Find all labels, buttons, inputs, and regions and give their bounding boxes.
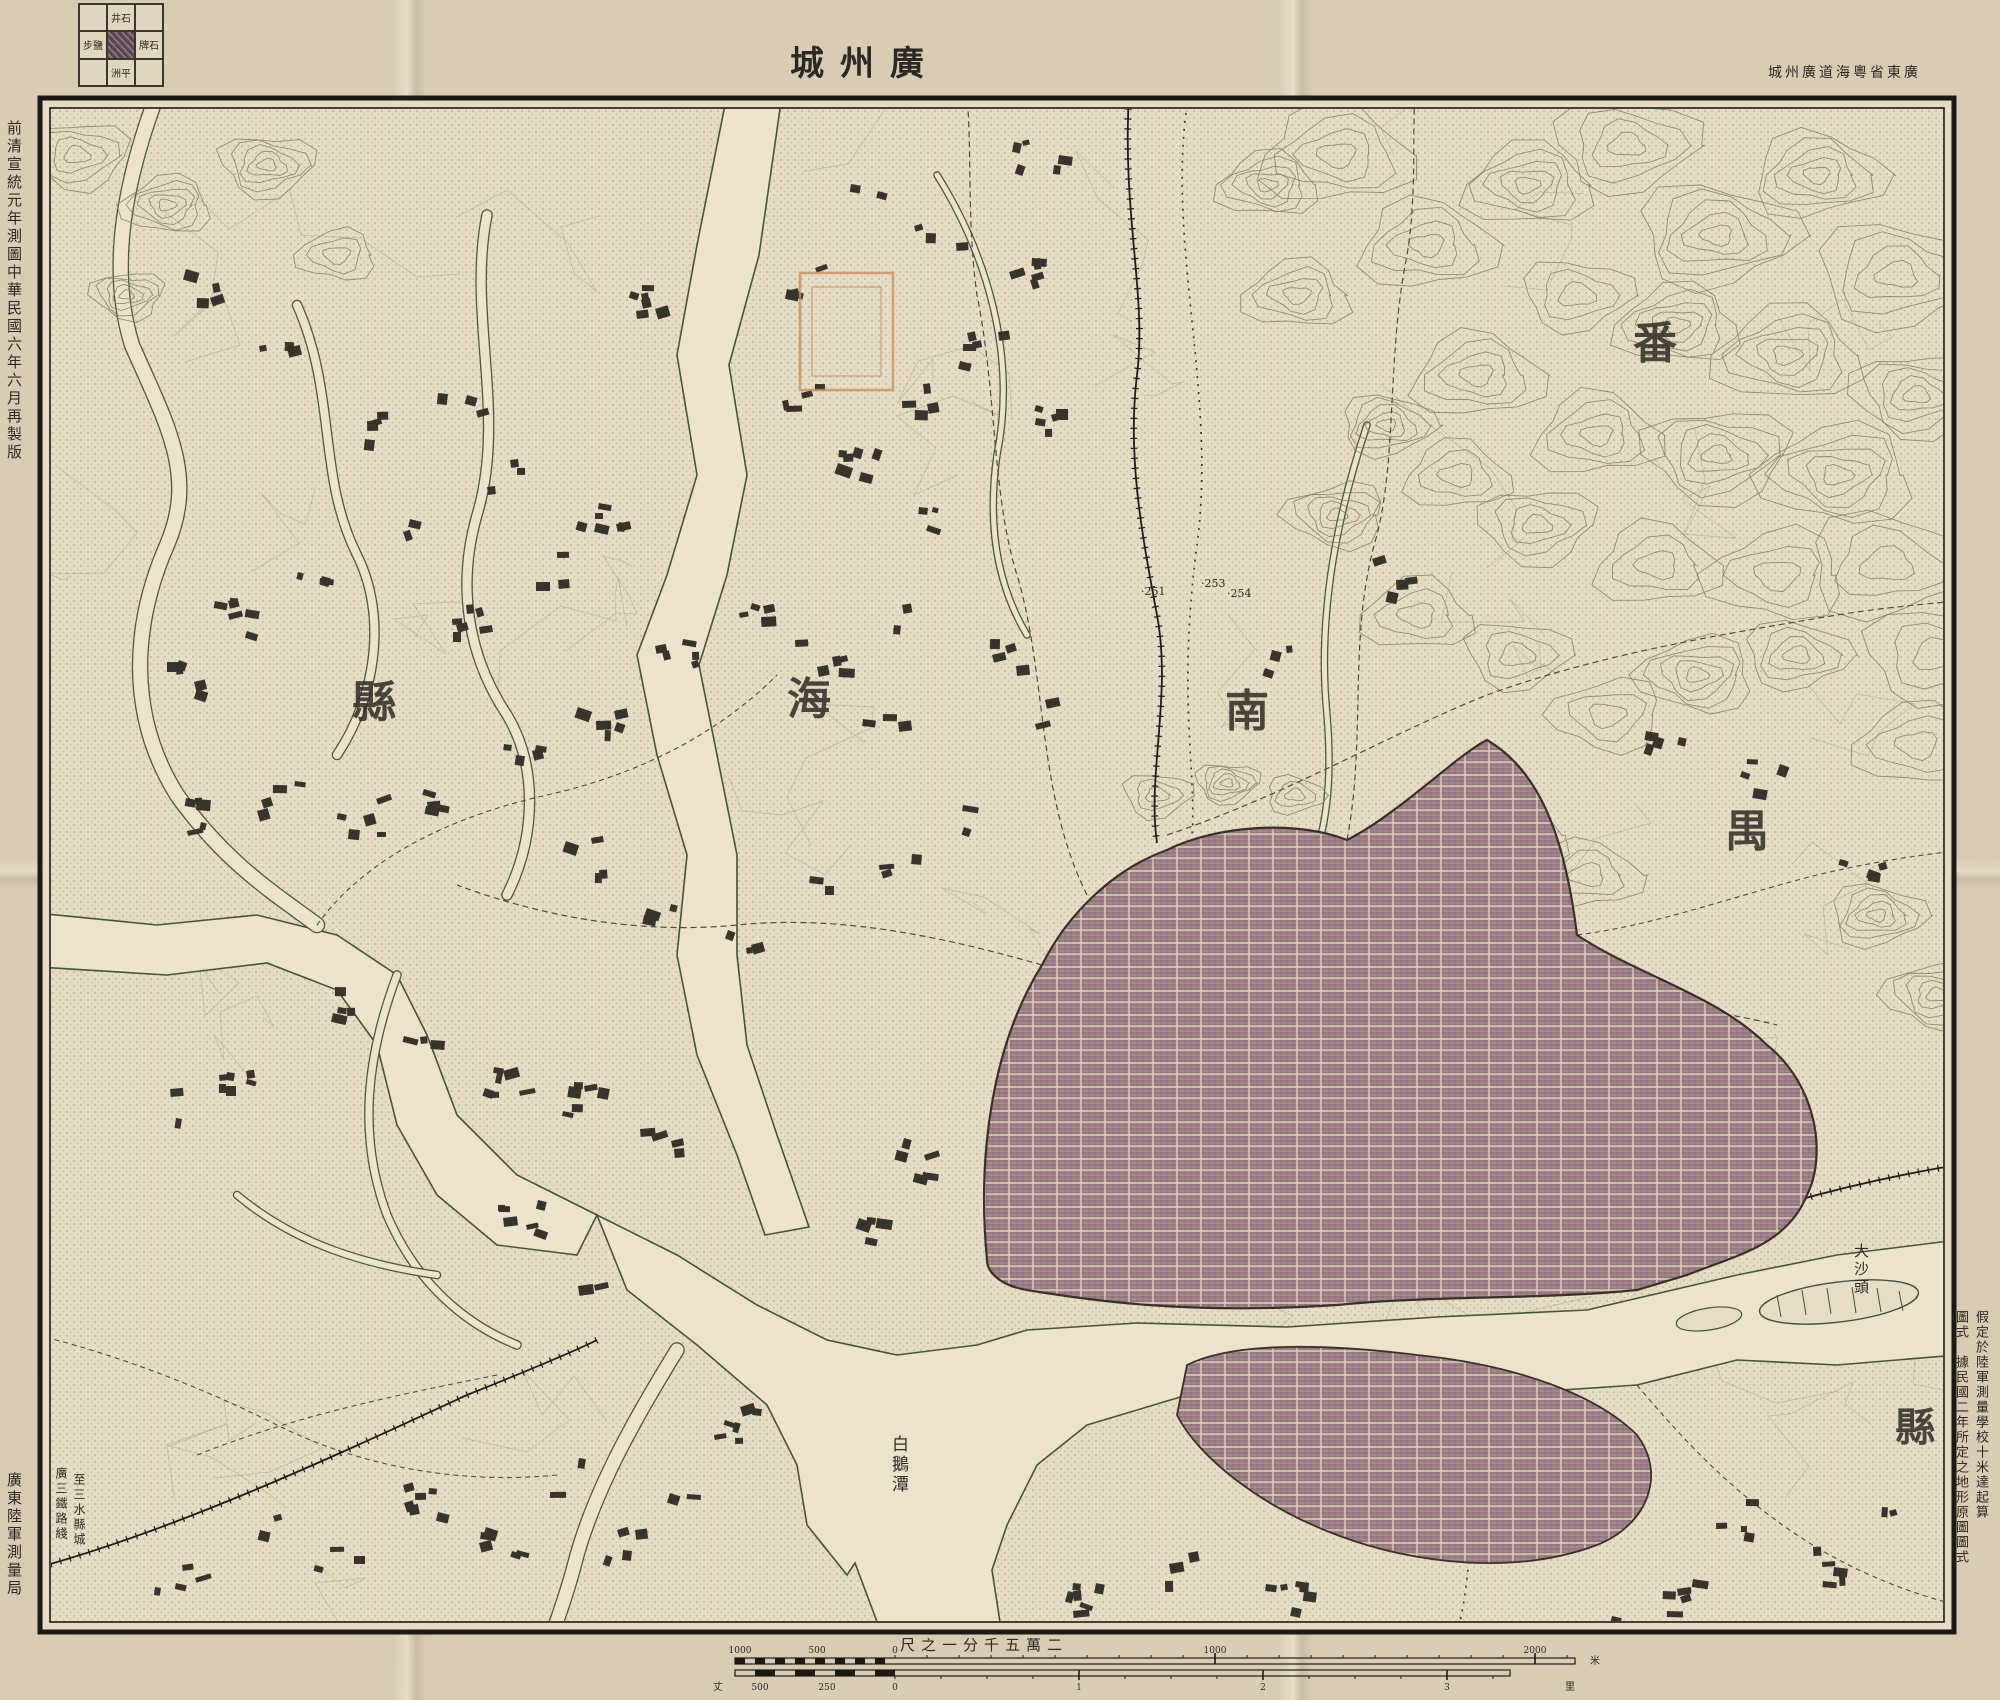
svg-text:2000: 2000 [1524, 1646, 1547, 1656]
index-cell-6 [79, 59, 107, 86]
index-cell-5: 牌石 [135, 31, 163, 58]
svg-text:米: 米 [1590, 1654, 1600, 1667]
svg-text:里: 里 [1565, 1681, 1575, 1693]
svg-text:1000: 1000 [729, 1646, 752, 1656]
svg-text:500: 500 [808, 1646, 825, 1656]
index-cell-8 [135, 59, 163, 86]
svg-text:0: 0 [892, 1646, 898, 1656]
svg-text:尺之一分千五萬二: 尺之一分千五萬二 [900, 1638, 1068, 1654]
index-cell-0 [79, 4, 107, 31]
svg-text:500: 500 [751, 1683, 768, 1693]
sheet-title: 城州廣 [790, 36, 940, 85]
svg-text:丈: 丈 [713, 1681, 723, 1693]
map-canvas [37, 95, 1957, 1635]
survey-date-note: 前清宣統元年測圖中華民國六年六月再製版 [6, 120, 21, 462]
index-cell-7: 洲平 [107, 59, 135, 86]
elevation-note: 假定於陸軍測量學校十米達起算 [1974, 1310, 1987, 1520]
svg-text:1000: 1000 [1204, 1646, 1227, 1656]
adjoining-sheets-index: 井石步鹽牌石洲平 [78, 3, 164, 87]
index-cell-this-sheet [107, 31, 135, 58]
svg-text:0: 0 [892, 1683, 898, 1693]
svg-text:250: 250 [818, 1683, 835, 1693]
svg-text:3: 3 [1444, 1683, 1450, 1693]
map-sheet: 城州廣 城州廣道海粵省東廣 前清宣統元年測圖中華民國六年六月再製版 廣東陸軍測量… [0, 0, 2000, 1700]
svg-text:1: 1 [1076, 1683, 1082, 1693]
index-cell-1: 井石 [107, 4, 135, 31]
scale-bar: 尺之一分千五萬二1000500010002000米5002500123丈里 [690, 1638, 1620, 1700]
index-cell-3: 步鹽 [79, 31, 107, 58]
svg-text:2: 2 [1260, 1683, 1266, 1693]
province-credit: 城州廣道海粵省東廣 [1768, 62, 1921, 82]
survey-bureau-note: 廣東陸軍測量局 [6, 1472, 21, 1598]
index-cell-2 [135, 4, 163, 31]
